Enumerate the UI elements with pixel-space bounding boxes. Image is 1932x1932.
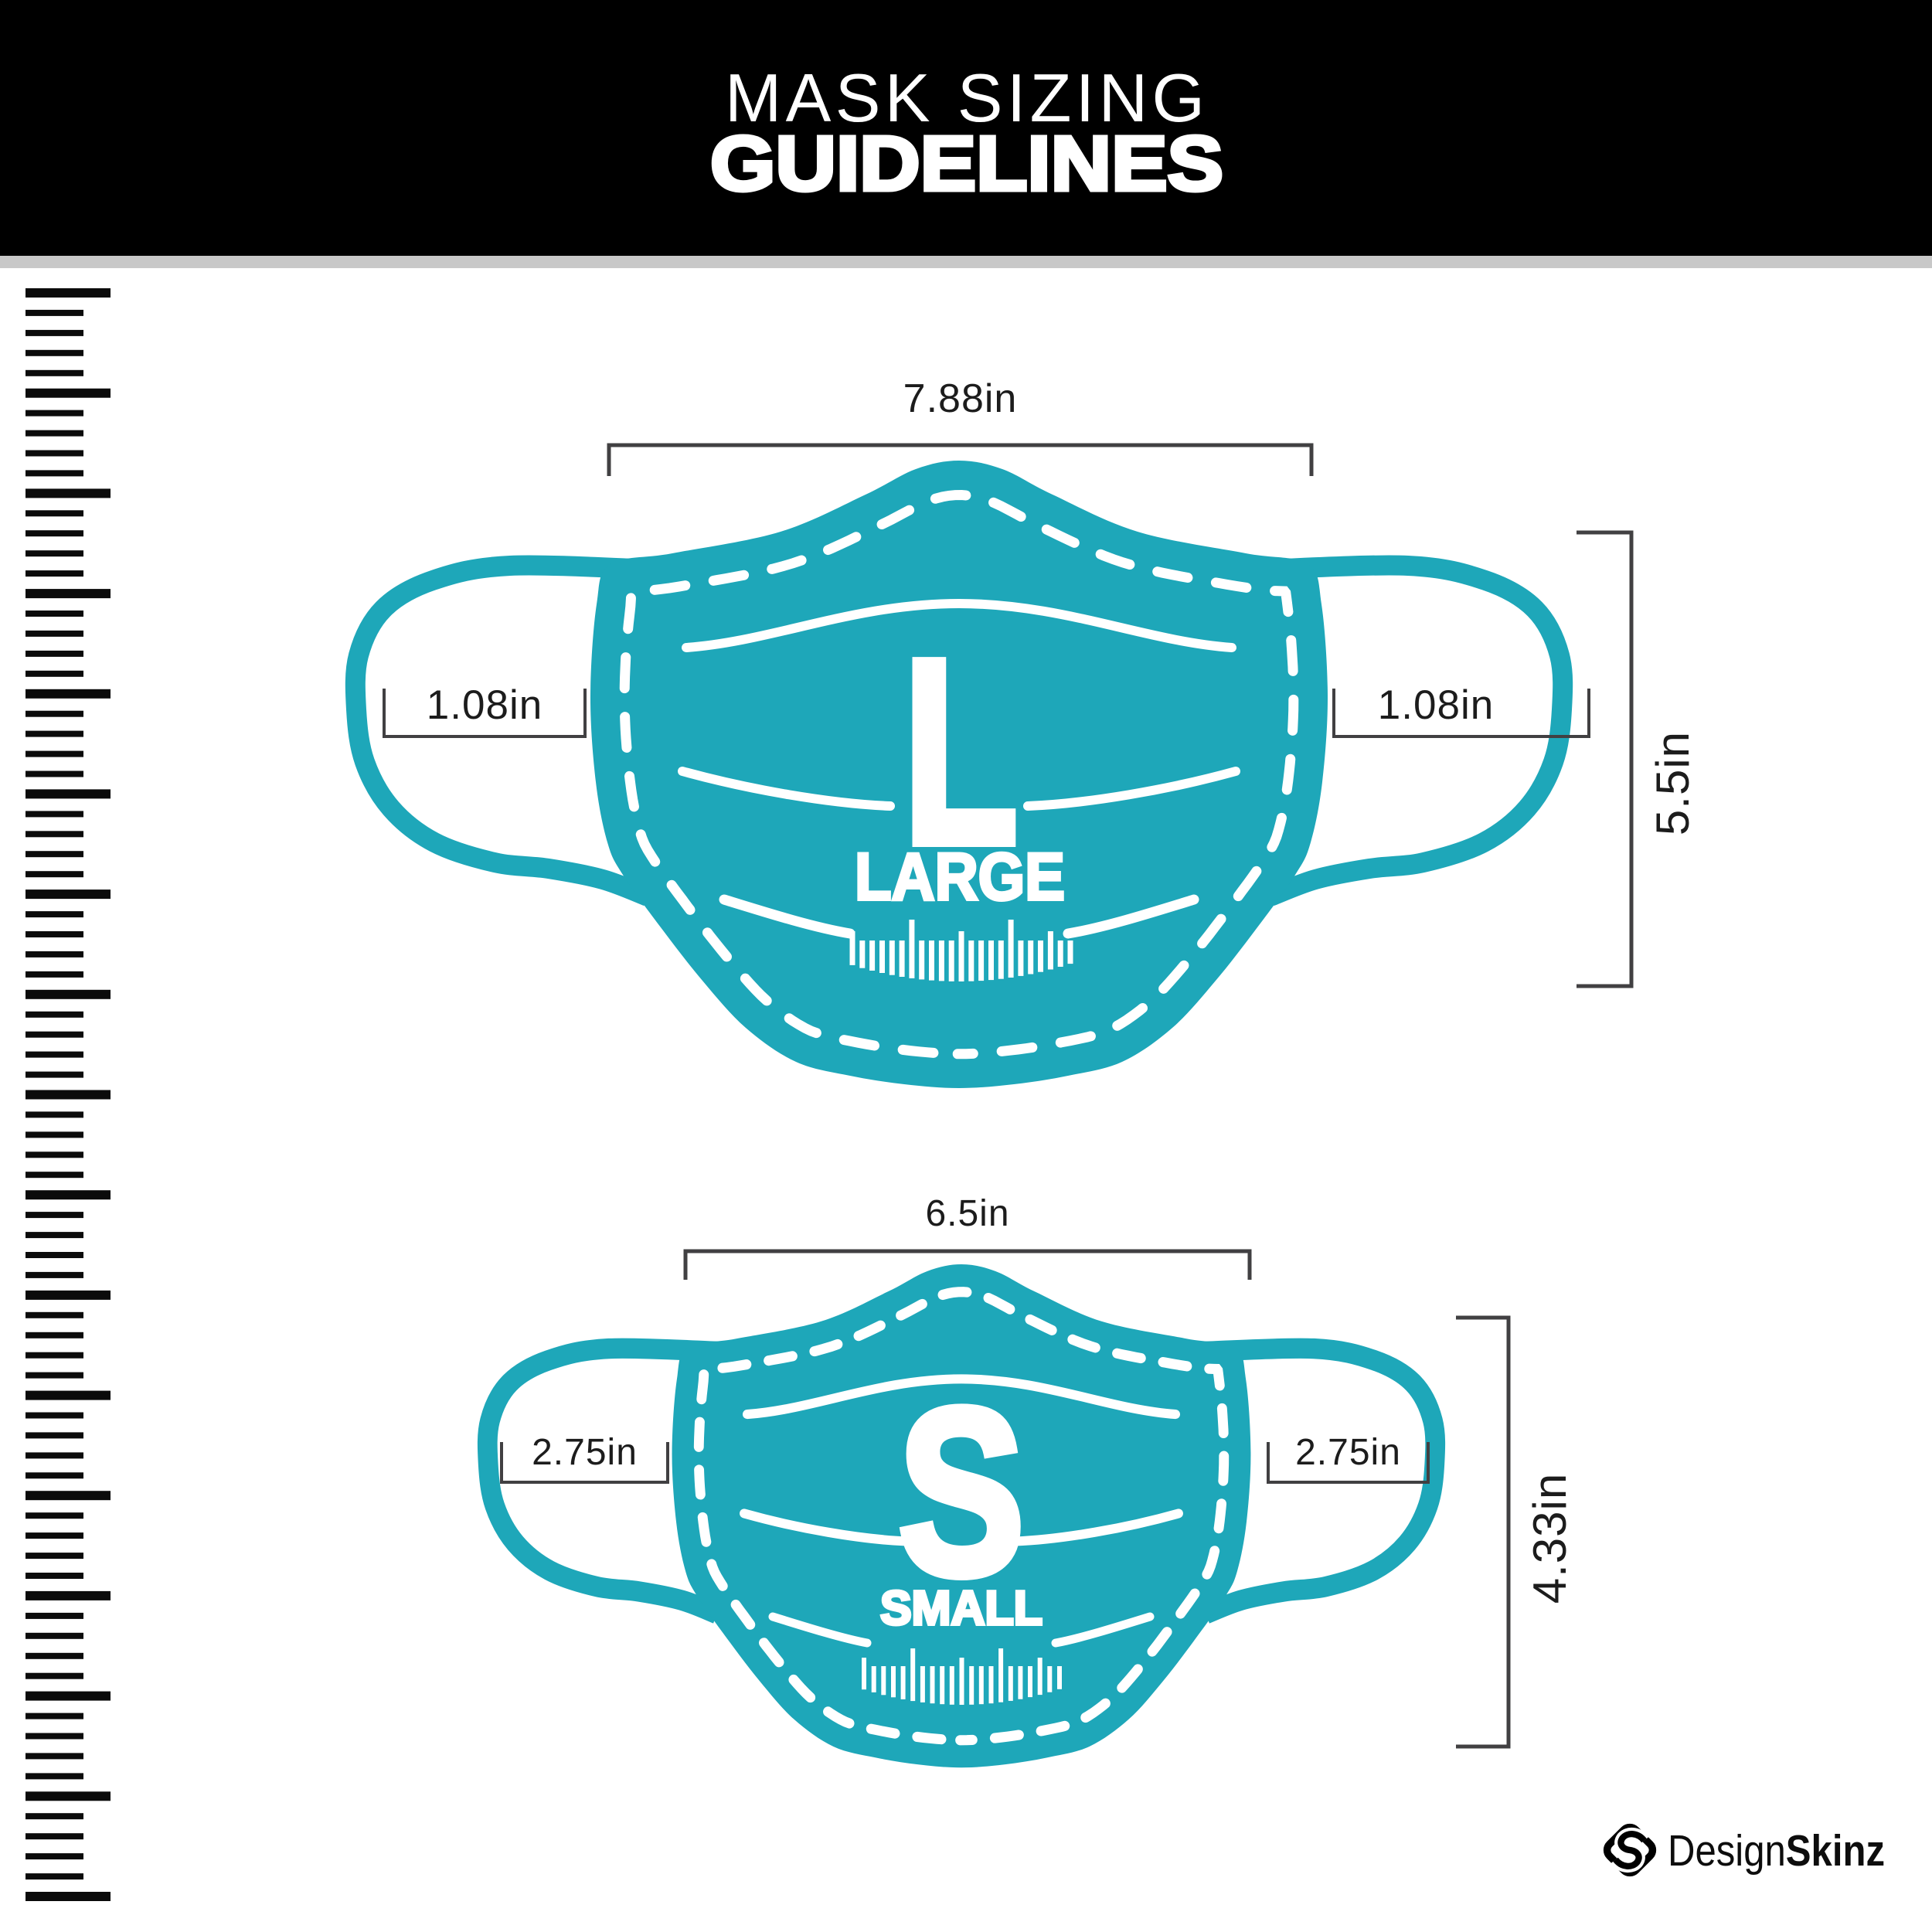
svg-text:1.08in: 1.08in <box>1378 682 1494 728</box>
svg-text:2.75in: 2.75in <box>1295 1432 1401 1473</box>
svg-text:7.88in: 7.88in <box>903 376 1018 421</box>
svg-text:5.5in: 5.5in <box>1647 731 1699 835</box>
svg-text:4.33in: 4.33in <box>1524 1473 1576 1604</box>
svg-text:SMALL: SMALL <box>880 1582 1043 1635</box>
svg-text:GUIDELINES: GUIDELINES <box>710 121 1223 207</box>
svg-text:2.75in: 2.75in <box>532 1432 638 1473</box>
svg-text:6.5in: 6.5in <box>925 1193 1009 1234</box>
svg-text:DesignSkinz: DesignSkinz <box>1668 1826 1885 1876</box>
svg-text:1.08in: 1.08in <box>427 682 543 728</box>
svg-text:LARGE: LARGE <box>855 840 1065 914</box>
